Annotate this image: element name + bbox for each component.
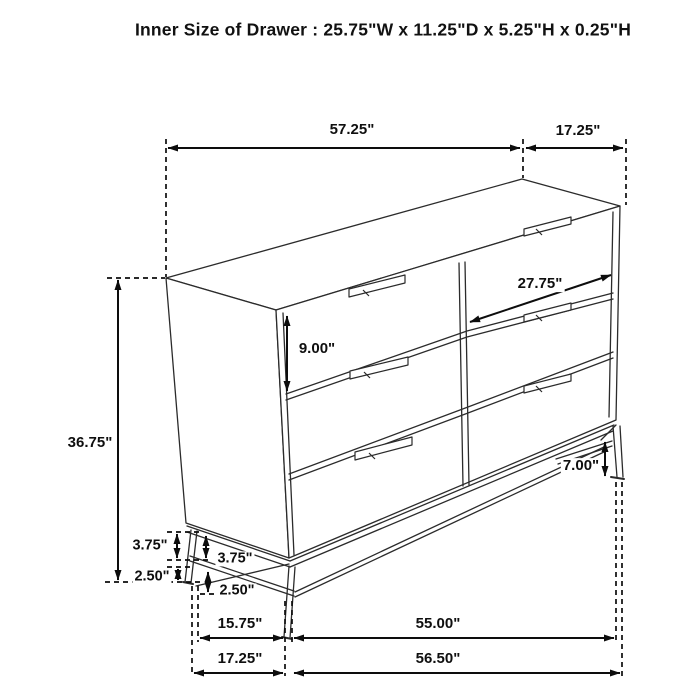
- dim-label-base-lower-inner: 2.50": [217, 583, 256, 598]
- furniture-dimension-diagram: Inner Size of Drawer : 25.75"W x 11.25"D…: [0, 0, 700, 700]
- dim-label-base-upper-outer: 3.75": [130, 538, 169, 553]
- dim-label-leg-span-width: 55.00": [414, 616, 463, 632]
- dim-label-drawer-height: 9.00": [297, 341, 337, 357]
- dresser-line-drawing: [0, 0, 700, 700]
- dim-label-floor-width: 56.50": [414, 651, 463, 667]
- dim-label-base-upper-inner: 3.75": [215, 551, 254, 566]
- dim-label-overall-height: 36.75": [66, 435, 115, 451]
- dim-label-drawer-width: 27.75": [516, 276, 565, 292]
- dim-label-cabinet-depth: 17.25": [554, 123, 603, 139]
- dim-label-leg-span-depth: 15.75": [216, 616, 265, 632]
- dim-label-floor-depth: 17.25": [216, 651, 265, 667]
- left-side-panel: [166, 278, 289, 558]
- dim-label-base-height: 7.00": [561, 458, 601, 474]
- dim-label-base-lower-outer: 2.50": [132, 569, 171, 584]
- dim-label-cabinet-width: 57.25": [328, 122, 377, 138]
